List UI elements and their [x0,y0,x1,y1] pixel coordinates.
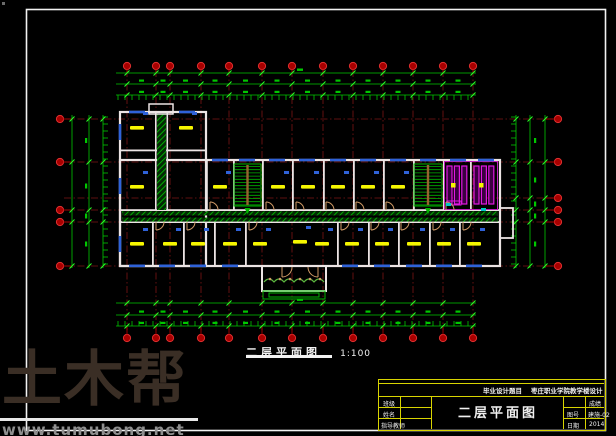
grid-bubble [554,262,561,269]
entrance-steps [263,291,325,299]
dimension-text [336,311,341,313]
grid-bubble [554,206,561,213]
toilet-stall [474,166,479,204]
partition-wall [206,160,208,211]
grid-bubble [152,334,159,341]
dimension-text [161,80,166,82]
dimension-text [396,91,401,93]
dimension-text [297,69,303,71]
door-arc [156,222,164,230]
partition-wall [167,112,169,211]
dimension-text [161,311,166,313]
plan-scale: 1:100 [340,349,371,359]
room-label [130,185,144,189]
partition-wall [152,222,154,266]
door-arc [463,222,471,230]
partition-wall [245,222,247,266]
dimension-text [456,91,461,93]
toilet-stall [462,166,467,204]
dimension-text [213,322,218,324]
grid-bubble [56,158,63,165]
window-tag [374,171,379,174]
partition-wall [214,222,216,266]
dimension-text [305,311,310,313]
dimension-text [336,322,341,324]
grid-bubble [554,218,561,225]
door-arc [266,202,274,210]
grid-bubble [469,62,476,69]
grid-bubble [123,334,130,341]
dimension-text [426,91,431,93]
window [222,265,238,268]
window-tag [176,228,181,231]
dimension-text [243,311,248,313]
grid-bubble [197,62,204,69]
door-arc [356,202,364,210]
dimension-text [85,214,87,219]
dimension-text [85,138,87,143]
student-name-label: 姓名 [383,410,395,419]
dimension-text [213,311,218,313]
window [450,159,466,162]
grid-bubble [554,115,561,122]
grid-bubble [439,334,446,341]
window [129,265,145,268]
window-tag [284,171,289,174]
drawing-name: 二层平面图 [433,402,563,421]
window [374,265,390,268]
partition-wall [383,160,385,211]
balcony [500,208,513,238]
room-label [293,240,307,244]
cad-drawing-viewport: 土木帮 www.tumubong.net 二层平面图 1:100 毕业设计题目 … [0,0,616,436]
window [466,265,482,268]
window-tag [143,228,148,231]
dimension-text [243,91,248,93]
grid-bubble [379,62,386,69]
window-tag [204,228,209,231]
dimension-text [85,242,87,247]
toilet-stall [489,166,494,204]
dimension-text [243,322,248,324]
room-label [213,185,227,189]
grid-bubble [554,158,561,165]
toilet-fixture [451,183,456,188]
grid-bubble [123,62,130,69]
window-tag [306,226,311,229]
window [420,159,436,162]
dimension-text [161,322,166,324]
toilet-fixture [479,183,484,188]
room-label [130,126,144,130]
dimension-text [366,322,371,324]
grid-bubble [554,194,561,201]
fixture-mark [446,203,451,206]
room-label [407,242,421,246]
partition-wall [398,222,400,266]
planting-dot [269,278,272,281]
entrance-porch [262,266,326,291]
room-label [301,185,315,189]
partition-wall [353,160,355,211]
dimension-text [336,80,341,82]
partition-wall [337,222,339,266]
window [159,265,175,268]
partition-wall [459,222,461,266]
grid-bubble [56,206,63,213]
partition-wall [292,160,294,211]
corridor-hatch [122,218,498,222]
grid-bubble [439,62,446,69]
window-tag [192,112,197,115]
dimension-text [183,322,188,324]
planting-dot [319,278,322,281]
dimension-text [305,91,310,93]
door-arc [249,222,257,230]
dimension-text [456,80,461,82]
dimension-text [243,80,248,82]
planting-dot [299,278,302,281]
grid-bubble [409,62,416,69]
room-label [345,242,359,246]
dimension-text [534,214,536,219]
dimension-text [213,80,218,82]
room-label [271,185,285,189]
partition-wall [323,160,325,211]
window [436,265,452,268]
grid-bubble [166,334,173,341]
dimension-text [305,80,310,82]
window [129,111,145,114]
dimension-text [275,80,280,82]
dimension-text [139,91,144,93]
advisor-label: 指导教师 [381,421,405,430]
door-arc [401,222,409,230]
window-tag [143,171,148,174]
grid-bubble [152,62,159,69]
dimension-text [161,91,166,93]
screen-artifact [2,2,5,5]
room-label [130,242,144,246]
room-label [179,126,193,130]
window [239,159,255,162]
door-arc [386,202,394,210]
dimension-text [366,311,371,313]
partition-wall [429,222,431,266]
planting-dot [279,278,282,281]
plan-title-underline [246,355,332,358]
dimension-text [396,311,401,313]
window-tag [314,171,319,174]
window-tag [266,228,271,231]
class-label: 班级 [383,399,395,408]
partition-wall [183,222,185,266]
dimension-text [534,242,536,247]
date-value: 2014 [589,421,604,428]
grid-bubble [288,62,295,69]
window [360,159,376,162]
room-label [437,242,451,246]
window-tag [236,228,241,231]
partition-wall [262,160,264,211]
grid-bubble [56,218,63,225]
window [119,178,122,194]
dimension-text [139,80,144,82]
grid-bubble [225,334,232,341]
grid-bubble [197,334,204,341]
dimension-text [183,311,188,313]
date-label: 日期 [567,421,579,430]
divider [431,396,432,429]
dimension-text [456,311,461,313]
window [119,124,122,140]
dimension-text [426,80,431,82]
dimension-text [336,91,341,93]
grid-bubble [349,62,356,69]
window [269,159,285,162]
room-label [223,242,237,246]
dimension-text [426,311,431,313]
partition-wall [368,222,370,266]
room-label [191,242,205,246]
partition-wall [155,112,157,211]
dimension-text [396,80,401,82]
dimension-text [456,322,461,324]
window-tag [420,228,425,231]
dimension-text [534,178,536,183]
divider [585,396,586,429]
window [406,265,422,268]
grid-bubble [469,334,476,341]
window-tag [404,171,409,174]
window-tag [143,112,148,115]
dimension-text [183,91,188,93]
partition-wall [470,160,472,211]
door-arc [210,202,218,210]
dimension-text [213,91,218,93]
window-tag [358,228,363,231]
dimension-text [275,311,280,313]
door-arc [308,267,318,277]
stair-strip-hatch [157,114,166,210]
room-label [361,185,375,189]
project-label: 毕业设计题目 [483,385,522,395]
dimension-text [139,311,144,313]
grid-bubble [166,62,173,69]
dimension-text [139,322,144,324]
dimension-text [396,322,401,324]
door-arc [187,222,195,230]
window [330,159,346,162]
canopy-planting [264,279,324,282]
dimension-text [85,184,87,189]
window [299,159,315,162]
dimension-text [305,322,310,324]
room-label [467,242,481,246]
window [119,236,122,252]
grade-value: 成绩 [589,399,601,408]
window [212,159,228,162]
watermark-brand: 土木帮 [2,348,188,412]
room-label [315,242,329,246]
dimension-text [366,80,371,82]
dimension-text [366,91,371,93]
divider [379,396,604,397]
grid-bubble [258,62,265,69]
planting-dot [309,278,312,281]
window-tag [480,228,485,231]
room-label [375,242,389,246]
window-tag [450,228,455,231]
dimension-text [275,322,280,324]
grid-bubble [225,62,232,69]
dimension-text [534,138,536,143]
fixture-mark [481,208,486,211]
door-arc [433,222,441,230]
dimension-text [183,80,188,82]
stair-handrail [427,165,429,205]
window-tag [226,171,231,174]
window-tag [328,228,333,231]
window [190,265,206,268]
room-label [331,185,345,189]
title-block-double-line [379,383,604,384]
window [390,159,406,162]
watermark: 土木帮 www.tumubong.net [2,348,188,412]
door-arc [296,202,304,210]
stair-handrail [246,165,248,205]
grid-bubble [56,115,63,122]
project-name: 枣庄职业学院教学楼设计 [531,385,603,395]
door-arc [326,202,334,210]
grid-bubble [379,334,386,341]
dimension-text [534,202,536,207]
window-tag [344,171,349,174]
room-label [163,242,177,246]
dimension-text [426,322,431,324]
planting-dot [289,278,292,281]
room-label [391,185,405,189]
room-label [253,242,267,246]
entrance-steps [269,293,319,297]
watermark-url: www.tumubong.net [2,421,185,436]
dimension-text [275,91,280,93]
sheet-no-label: 图号 [567,410,579,419]
door-arc [282,267,292,277]
window [342,265,358,268]
grid-bubble [409,334,416,341]
title-block: 毕业设计题目 枣庄职业学院教学楼设计 班级 姓名 指导教师 二层平面图 成绩 图… [378,379,606,431]
grid-bubble [56,262,63,269]
grid-bubble [319,62,326,69]
sheet-no-value: 建施-02 [588,410,610,419]
window [478,159,494,162]
plan-caption: 二层平面图 1:100 [246,341,371,360]
door-arc [371,222,379,230]
corridor-hatch [122,211,498,215]
divider [563,396,564,429]
window-tag [388,228,393,231]
door-arc [341,222,349,230]
